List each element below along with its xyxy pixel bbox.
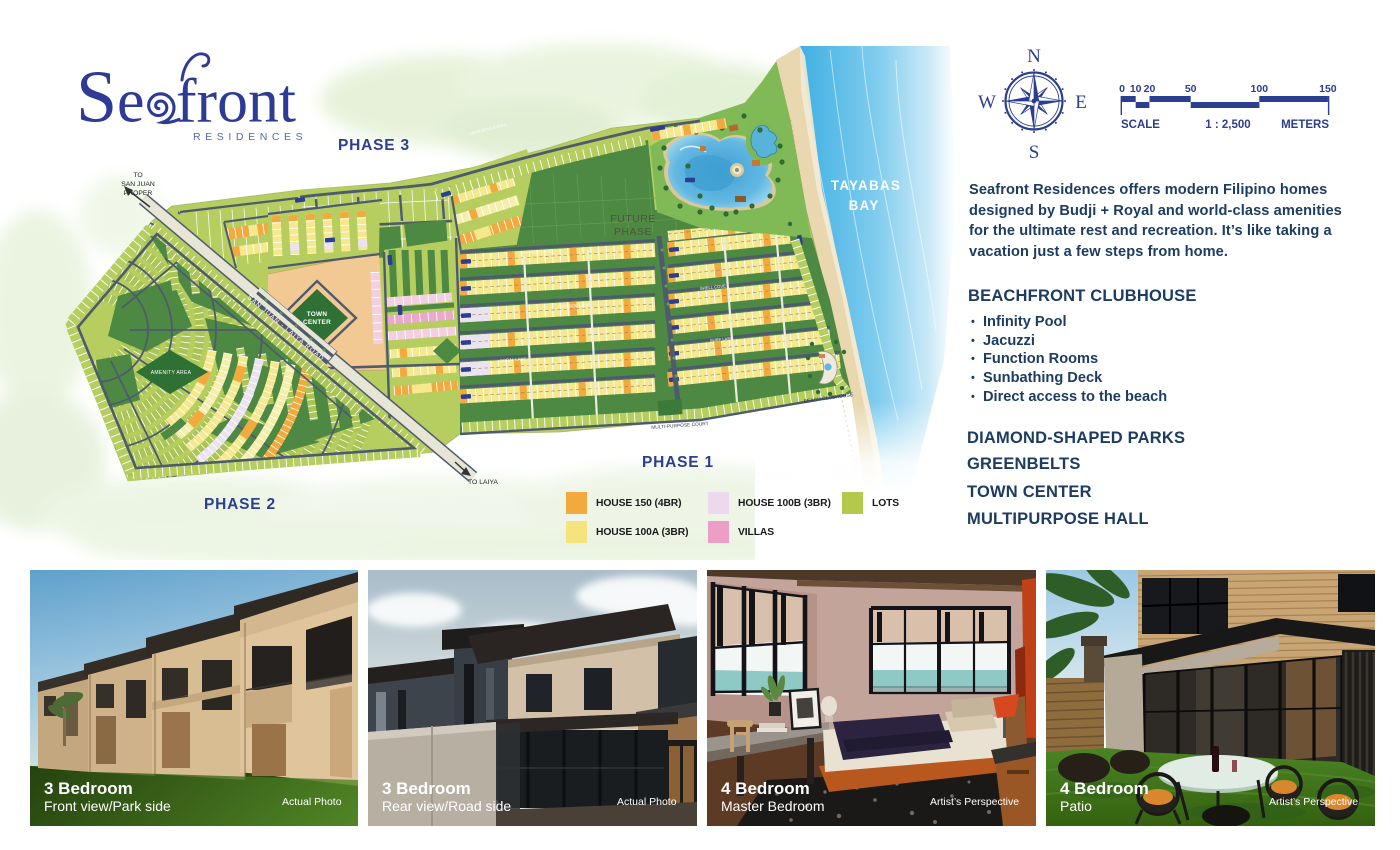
svg-text:SCALE: SCALE — [1121, 119, 1160, 131]
svg-text:PHASE 1: PHASE 1 — [642, 454, 714, 471]
svg-text:TO LAIYA: TO LAIYA — [468, 479, 498, 486]
svg-text:W: W — [978, 92, 996, 113]
svg-text:TO: TO — [133, 172, 142, 179]
svg-text:150: 150 — [1319, 83, 1337, 95]
svg-text:TOWN: TOWN — [307, 311, 328, 318]
svg-text:METERS: METERS — [1281, 119, 1329, 131]
svg-text:PHASE 2: PHASE 2 — [204, 496, 276, 513]
svg-text:S: S — [76, 57, 117, 139]
svg-text:10: 10 — [1130, 83, 1142, 95]
svg-text:1 : 2,500: 1 : 2,500 — [1205, 119, 1250, 131]
svg-text:TAYABAS: TAYABAS — [831, 178, 901, 193]
svg-text:20: 20 — [1144, 83, 1156, 95]
svg-text:AMENITY AREA: AMENITY AREA — [151, 370, 192, 376]
svg-text:N: N — [1027, 46, 1041, 67]
svg-text:FUTURE: FUTURE — [610, 213, 656, 225]
svg-text:RESIDENCES: RESIDENCES — [193, 131, 307, 143]
svg-text:PHASE: PHASE — [614, 226, 652, 238]
svg-text:S: S — [1029, 142, 1040, 161]
svg-text:front: front — [176, 68, 296, 136]
svg-text:100: 100 — [1251, 83, 1269, 95]
svg-text:0: 0 — [1119, 83, 1125, 95]
svg-text:PROPER: PROPER — [124, 190, 153, 197]
svg-text:e: e — [117, 68, 145, 136]
svg-text:BAY: BAY — [849, 198, 880, 213]
svg-text:50: 50 — [1185, 83, 1197, 95]
svg-text:SAN JUAN: SAN JUAN — [121, 181, 155, 188]
svg-text:E: E — [1075, 92, 1087, 113]
svg-text:CENTER: CENTER — [303, 319, 331, 326]
